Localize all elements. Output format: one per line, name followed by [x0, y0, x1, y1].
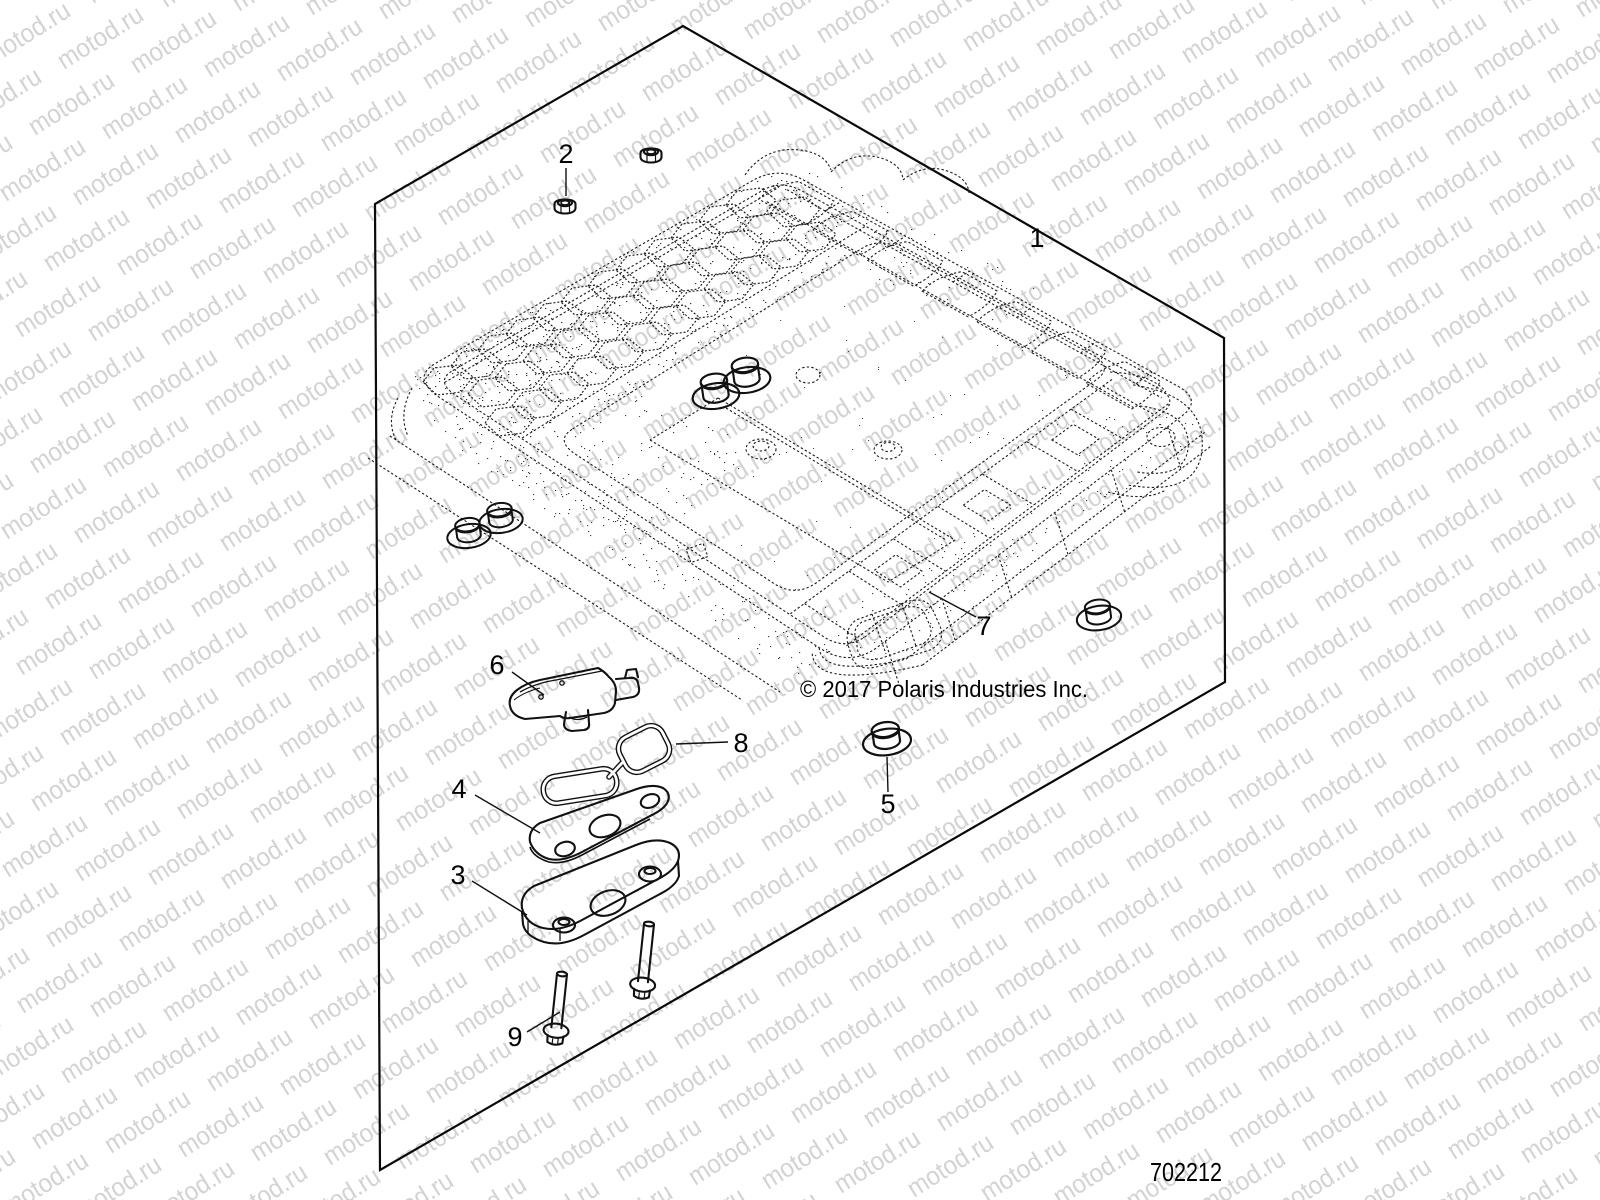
svg-text:© 2017 Polaris Industries Inc.: © 2017 Polaris Industries Inc. [800, 676, 1088, 702]
svg-text:9: 9 [507, 1022, 522, 1052]
svg-text:4: 4 [451, 774, 466, 804]
svg-text:702212: 702212 [1150, 1157, 1222, 1187]
svg-text:3: 3 [450, 860, 465, 890]
svg-text:7: 7 [976, 611, 991, 641]
svg-text:8: 8 [733, 728, 748, 758]
svg-text:6: 6 [489, 650, 504, 680]
svg-text:5: 5 [880, 789, 895, 819]
svg-text:1: 1 [1029, 223, 1044, 253]
svg-text:2: 2 [558, 139, 573, 169]
